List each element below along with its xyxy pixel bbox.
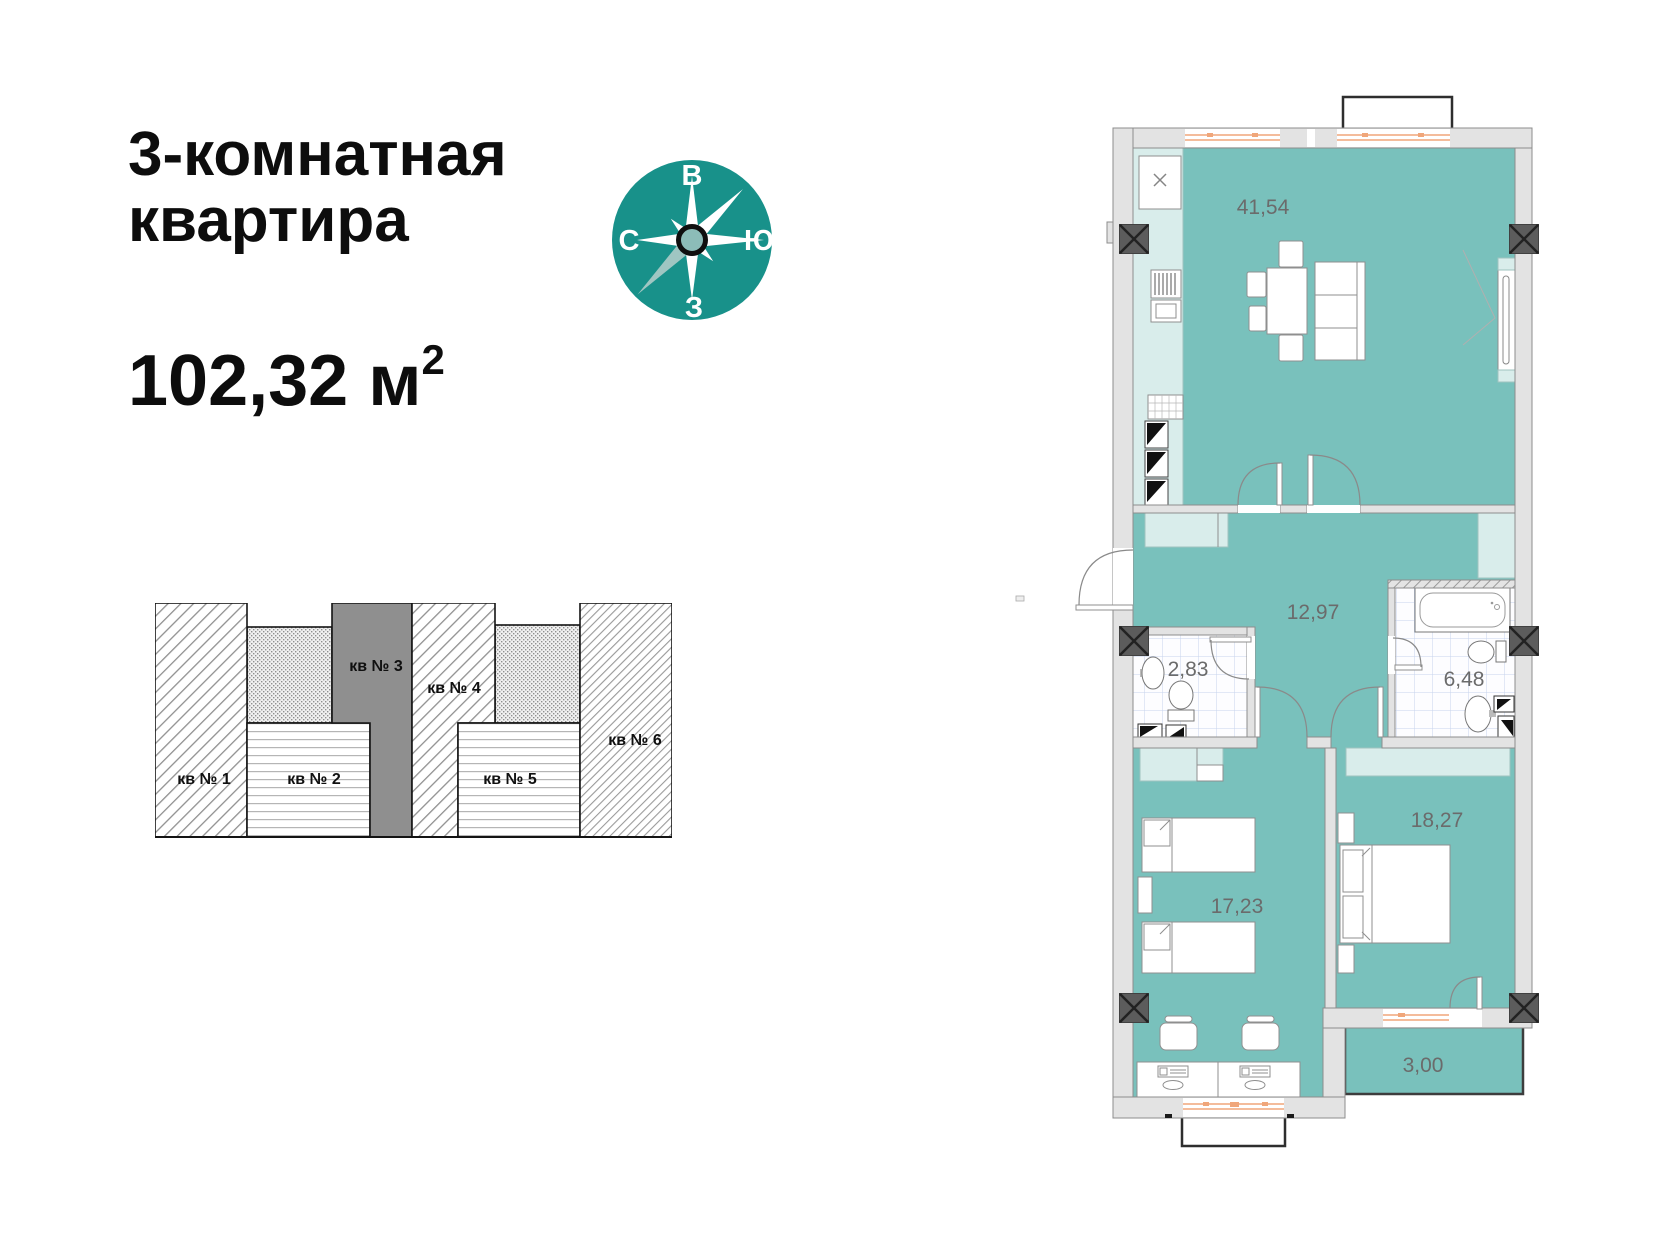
window-slit — [1307, 129, 1315, 147]
master-nightstand-1-icon — [1338, 813, 1354, 843]
window-living-1 — [1185, 129, 1280, 147]
wall-wc-top — [1148, 627, 1255, 635]
stove-icon — [1151, 270, 1181, 322]
fridge-icon — [1145, 421, 1168, 505]
sofa-icon — [1315, 262, 1365, 360]
children-wardrobe-icon — [1140, 748, 1223, 781]
column-icon — [1119, 993, 1149, 1023]
balcony-top — [1343, 97, 1452, 130]
bedroom-children-area-label: 17,23 — [1211, 895, 1264, 918]
master-wardrobe-icon — [1346, 748, 1510, 776]
unit-6-label: кв № 6 — [608, 732, 662, 749]
balcony-bottom-left — [1182, 1118, 1285, 1148]
entrance-door — [1016, 548, 1133, 610]
balcony-area-label: 3,00 — [1403, 1054, 1444, 1077]
compass-west-label: З — [685, 292, 703, 324]
wc-toilet-icon — [1168, 681, 1194, 721]
dishwasher-icon — [1148, 395, 1183, 419]
column-icon — [1119, 626, 1149, 656]
compass-north-label: С — [619, 225, 640, 257]
nightstand-icon — [1138, 877, 1152, 913]
compass-south-label: Ю — [744, 225, 774, 257]
unit-5-upper-block — [495, 625, 580, 723]
compass-east-label: В — [682, 160, 703, 192]
unit-3-label: кв № 3 — [349, 658, 403, 675]
title-line-1: 3-комнатная — [128, 122, 507, 188]
living-area-label: 41,54 — [1237, 196, 1290, 219]
unit-2-label: кв № 2 — [287, 771, 341, 788]
unit-2-upper-block — [247, 627, 332, 723]
desk-icon — [1137, 1062, 1300, 1097]
hallway-wardrobe-icon — [1145, 513, 1228, 547]
unit-4-label: кв № 4 — [427, 680, 481, 697]
area-superscript: 2 — [421, 336, 444, 383]
kitchen-sink-icon — [1139, 156, 1181, 209]
window-living-2 — [1337, 129, 1450, 147]
page: 3-комнатная квартира 102,32 м2 В Ю З С — [0, 0, 1680, 1260]
unit-5-label: кв № 5 — [483, 771, 537, 788]
bedroom-master-area-label: 18,27 — [1411, 809, 1464, 832]
compass-rose: В Ю З С — [607, 155, 777, 325]
unit-6-block — [580, 603, 672, 837]
window-bedroom-master — [1383, 1009, 1449, 1027]
hallway-area-label: 12,97 — [1287, 601, 1340, 624]
column-icon — [1509, 993, 1539, 1023]
page-title: 3-комнатная квартира — [128, 122, 507, 254]
unit-1-block — [155, 603, 247, 837]
column-icon — [1509, 224, 1539, 254]
wall-left-step — [1107, 222, 1113, 243]
bed-single-2-icon — [1142, 922, 1255, 973]
wall-right — [1515, 148, 1532, 1023]
apartment-area: 102,32 м2 — [128, 340, 445, 422]
bathroom-area-label: 6,48 — [1444, 668, 1485, 691]
wall-between-bedrooms — [1325, 748, 1336, 1008]
column-icon — [1119, 224, 1149, 254]
column-icon — [1509, 626, 1539, 656]
compass-hub-icon — [679, 227, 706, 254]
bathroom-toilet-icon — [1468, 641, 1506, 663]
wall-left — [1113, 128, 1133, 1118]
area-value: 102,32 м — [128, 341, 421, 421]
master-nightstand-2-icon — [1338, 945, 1354, 973]
bathtub-icon — [1415, 588, 1510, 632]
unit-1-label: кв № 1 — [177, 771, 231, 788]
bed-double-icon — [1340, 845, 1450, 943]
bed-single-1-icon — [1142, 818, 1255, 872]
wc-area-label: 2,83 — [1168, 658, 1209, 681]
wall-top — [1113, 128, 1532, 148]
building-position-diagram: кв № 1 кв № 2 кв № 3 кв № 4 кв № 5 кв № … — [155, 603, 672, 838]
kitchen-counter — [1133, 148, 1183, 505]
window-bedroom-children — [1165, 1098, 1294, 1118]
title-line-2: квартира — [128, 188, 507, 254]
floor-plan: 41,54 12,97 2,83 6,48 17,23 18,27 3,00 — [1000, 80, 1560, 1180]
hallway-wardrobe-right-icon — [1478, 513, 1515, 578]
wall-bathroom-top — [1388, 580, 1515, 588]
